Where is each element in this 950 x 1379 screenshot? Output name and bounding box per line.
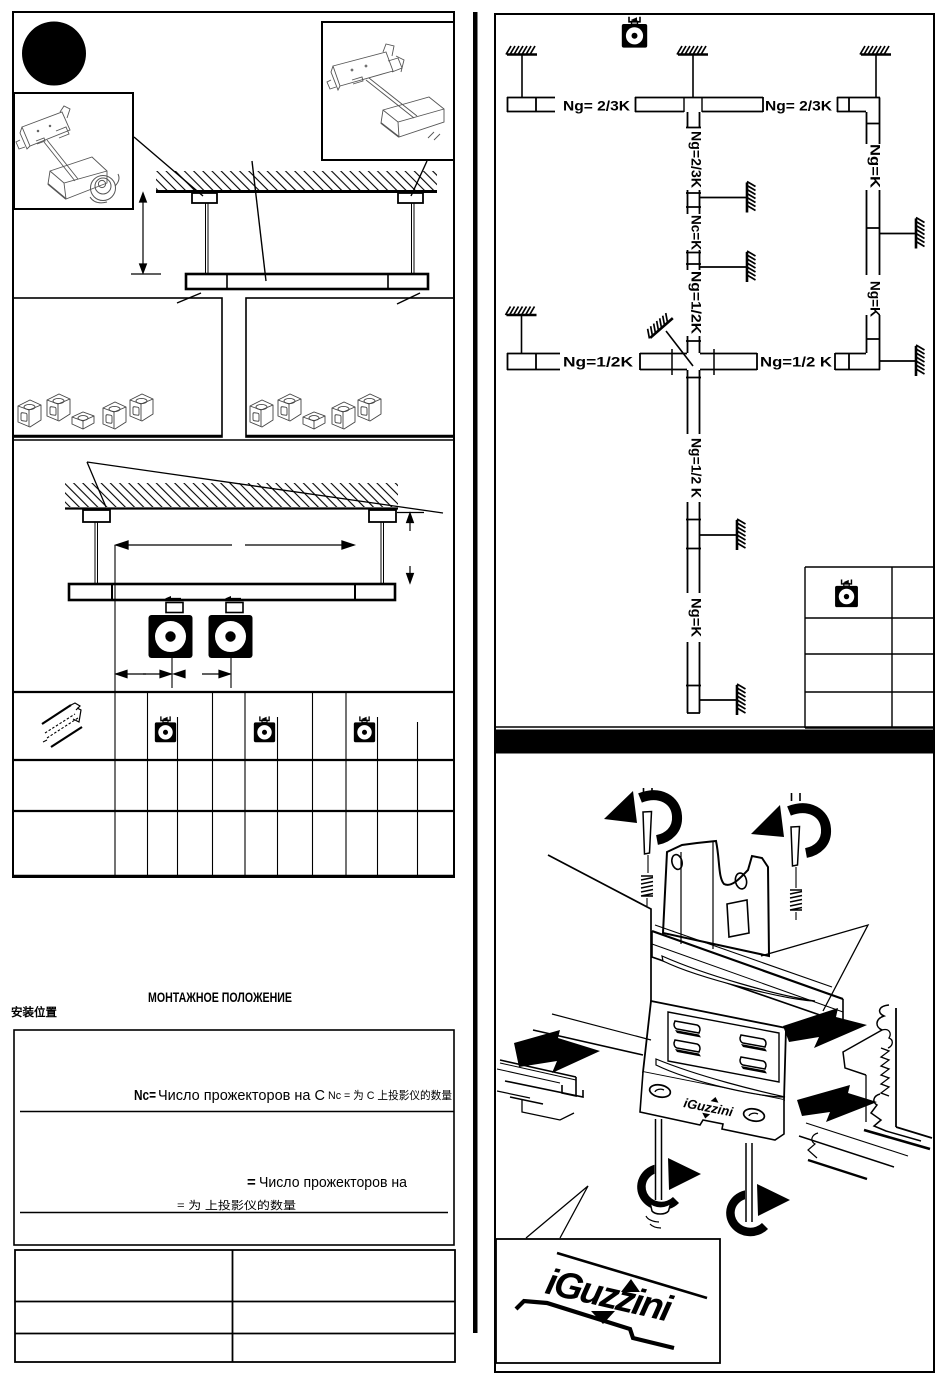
svg-text:Ng= 2/3K: Ng= 2/3K (563, 99, 630, 114)
svg-text:Ng=1/2K: Ng=1/2K (689, 271, 704, 334)
svg-text:Ng=1/2 K: Ng=1/2 K (760, 355, 832, 370)
svg-text:МОНТАЖНОЕ ПОЛОЖЕНИЕ: МОНТАЖНОЕ ПОЛОЖЕНИЕ (148, 989, 292, 1005)
svg-text:=: = (247, 1174, 256, 1191)
svg-text:Ng=K: Ng=K (689, 598, 704, 637)
svg-text:Nc=: Nc= (134, 1087, 156, 1104)
svg-text:Ng=1/2K: Ng=1/2K (563, 355, 633, 370)
svg-text:Ng=K: Ng=K (868, 144, 883, 188)
svg-text:Число прожекторов на: Число прожекторов на (259, 1174, 408, 1191)
svg-text:Nc=K: Nc=K (689, 215, 704, 250)
svg-text:Ng=1/2 K: Ng=1/2 K (689, 438, 704, 498)
svg-text:Число прожекторов на C: Число прожекторов на C (158, 1087, 325, 1104)
svg-text:= 为 上投影仪的数量: = 为 上投影仪的数量 (177, 1198, 296, 1212)
svg-text:Ng= 2/3K: Ng= 2/3K (765, 99, 832, 114)
svg-text:Ng=K: Ng=K (868, 281, 883, 317)
svg-text:Nc = 为 C 上投影仪的数量: Nc = 为 C 上投影仪的数量 (328, 1088, 452, 1102)
svg-text:安装位置: 安装位置 (11, 1005, 57, 1019)
svg-text:Ng=2/3K: Ng=2/3K (689, 131, 704, 188)
